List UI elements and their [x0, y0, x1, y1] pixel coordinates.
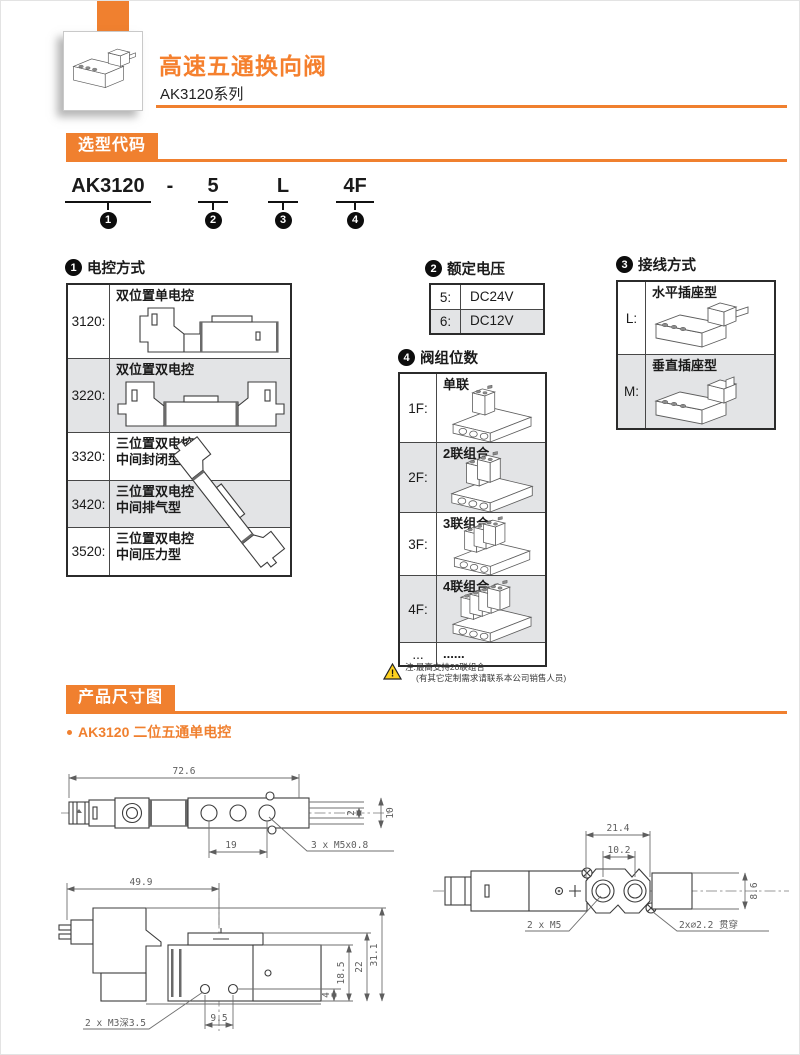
datasheet-page: 高速五通换向阀 AK3120系列 选型代码 AK3120 1 - 5 2 L 3…: [0, 0, 800, 1055]
page-title: 高速五通换向阀: [159, 47, 327, 81]
row-desc-line1: 三位置双电控: [116, 436, 284, 452]
row-code: 3320:: [68, 433, 110, 480]
model-code-tick: [354, 203, 356, 210]
note-line1: 注:最高支持20联组合: [405, 662, 566, 673]
model-code-tick: [212, 203, 214, 210]
row-desc-line1: 单联: [443, 377, 539, 393]
model-code-mark-4: 4: [347, 212, 364, 229]
row-desc-line1: 垂直插座型: [652, 358, 768, 374]
dim-hole-pitch: 9.5: [210, 1013, 227, 1024]
warning-triangle-icon: !: [383, 663, 402, 680]
row-desc-line1: 三位置双电控: [116, 484, 284, 500]
table-row: 2F: 2联组合: [400, 442, 545, 512]
row-desc: DC12V: [461, 310, 543, 333]
model-code-stations: 4F: [336, 175, 374, 203]
section-selection-rule: [66, 159, 787, 162]
table-row: 6: DC12V: [431, 309, 543, 333]
svg-text:!: !: [391, 669, 394, 680]
row-desc-line1: 三位置双电控: [116, 531, 284, 547]
table-row: 3320: 三位置双电控 中间封闭型: [68, 432, 290, 480]
row-desc: 垂直插座型: [646, 355, 774, 428]
row-code: 2F:: [400, 443, 437, 512]
note-line2: (有其它定制需求请联系本公司销售人员): [405, 673, 566, 684]
header-rule: [156, 105, 787, 108]
row-desc: DC24V: [461, 285, 543, 309]
valve-isometric-icon: [69, 43, 137, 99]
dim-overall-length: 72.6: [173, 766, 196, 777]
circled-digit-4: 4: [398, 349, 415, 366]
dim-port-thread-bottom: 2 x M5: [527, 920, 561, 931]
row-desc-line2: 中间压力型: [116, 547, 284, 563]
model-code-base: AK3120: [65, 175, 151, 203]
model-code-wiring: L: [268, 175, 298, 203]
row-code: 1F:: [400, 374, 437, 442]
table-row: 3520: 三位置双电控 中间压力型: [68, 527, 290, 575]
dim-side-length: 49.9: [130, 877, 153, 888]
model-code-segment-wiring: L 3: [268, 175, 298, 229]
dim-body-width: 10: [385, 807, 396, 819]
control-table-header: 1 电控方式: [65, 257, 145, 278]
table-row: 3F: 3联组合: [400, 512, 545, 575]
dim-slot-width: 2: [346, 810, 357, 816]
model-code-voltage: 5: [198, 175, 228, 203]
row-desc-line2: 中间封闭型: [116, 452, 284, 468]
model-code-tick: [282, 203, 284, 210]
dim-hole-offset: 4: [321, 992, 332, 998]
table-row: 5: DC24V: [431, 285, 543, 309]
circled-digit-1: 1: [65, 259, 82, 276]
model-code-mark-1: 1: [100, 212, 117, 229]
stations-table: 1F: 单联 2F: 2联组合: [398, 372, 547, 667]
row-desc-line1: 3联组合: [443, 516, 539, 532]
model-code-segment-stations: 4F 4: [336, 175, 374, 229]
dimension-drawing-top-view: 72.6 19 3 x M5x0.8 10 2: [59, 754, 404, 872]
model-code-segment-base: AK3120 1: [65, 175, 151, 229]
table-row: 4F: 4联组合: [400, 575, 545, 642]
table-row: L: 水平插座型: [618, 282, 774, 354]
row-code: 3220:: [68, 359, 110, 432]
model-code-separator: -: [161, 175, 179, 201]
table-row: M: 垂直插座型: [618, 354, 774, 428]
valve-iso-vertical-socket: [650, 375, 770, 427]
row-desc-line1: 4联组合: [443, 579, 539, 595]
dim-height-mid: 22: [354, 961, 365, 972]
dim-flange-width: 21.4: [607, 823, 630, 834]
table-row: 3220: 双位置双电控: [68, 358, 290, 432]
model-code-tick: [107, 203, 109, 210]
dimension-drawing-bottom-view: 21.4 10.2 8.6 2 x M5 2x∅2.2 贯穿: [429, 813, 796, 955]
row-desc: 三位置双电控 中间封闭型: [110, 433, 290, 480]
dim-port-pitch: 19: [225, 840, 237, 851]
row-desc-line1: 双位置单电控: [116, 288, 284, 304]
row-desc: 三位置双电控 中间压力型: [110, 528, 290, 575]
row-code: 3420:: [68, 481, 110, 527]
voltage-table-title: 额定电压: [447, 258, 505, 279]
circled-digit-3: 3: [616, 256, 633, 273]
voltage-table-header: 2 额定电压: [425, 258, 505, 279]
valve-side-drawing-double: [112, 374, 290, 430]
stations-table-header: 4 阀组位数: [398, 347, 478, 368]
circled-digit-2: 2: [425, 260, 442, 277]
row-desc: 3联组合: [437, 513, 545, 575]
model-code-segment-voltage: 5 2: [198, 175, 228, 229]
row-code: M:: [618, 355, 646, 428]
series-subtitle: AK3120系列: [160, 83, 243, 104]
stations-table-title: 阀组位数: [420, 347, 478, 368]
valve-side-drawing-single: [136, 298, 288, 356]
model-code-separator-wrap: -: [161, 175, 179, 201]
dim-mount-thread: 2 x M3深3.5: [85, 1018, 146, 1029]
row-desc: 水平插座型: [646, 282, 774, 354]
row-desc: 2联组合: [437, 443, 545, 512]
note-text: 注:最高支持20联组合 (有其它定制需求请联系本公司销售人员): [405, 662, 566, 684]
table-row: 3120: 双位置单电控: [68, 285, 290, 358]
row-desc: 双位置单电控: [110, 285, 290, 358]
model-code-mark-2: 2: [205, 212, 222, 229]
row-code: 6:: [431, 310, 461, 333]
table-row: 1F: 单联: [400, 374, 545, 442]
product-thumbnail-card: [63, 31, 143, 111]
row-code: 5:: [431, 285, 461, 309]
dim-port-pitch-bottom: 10.2: [608, 845, 631, 856]
dimension-subtitle: AK3120 二位五通单电控: [78, 722, 231, 742]
wiring-table: L: 水平插座型 M: 垂直插座型: [616, 280, 776, 430]
row-code: 3520:: [68, 528, 110, 575]
row-code: 3120:: [68, 285, 110, 358]
model-code-mark-3: 3: [275, 212, 292, 229]
dim-port-thread: 3 x M5x0.8: [311, 840, 368, 851]
wiring-table-header: 3 接线方式: [616, 254, 696, 275]
valve-iso-horizontal-socket: [650, 302, 770, 352]
row-code: L:: [618, 282, 646, 354]
row-desc: 三位置双电控 中间排气型: [110, 481, 290, 527]
dim-through-hole: 2x∅2.2 贯穿: [679, 919, 738, 931]
control-table-title: 电控方式: [87, 257, 145, 278]
row-desc-line1: 双位置双电控: [116, 362, 284, 378]
dim-height-port: 18.5: [336, 962, 347, 985]
section-selection-bar: 选型代码: [66, 133, 158, 159]
dim-body-width-bottom: 8.6: [749, 882, 760, 899]
wiring-table-title: 接线方式: [638, 254, 696, 275]
row-desc-line2: 中间排气型: [116, 500, 284, 516]
section-dimensions-bar: 产品尺寸图: [66, 685, 175, 711]
section-dimensions-rule: [66, 711, 787, 714]
row-desc-line1: 水平插座型: [652, 285, 768, 301]
voltage-table: 5: DC24V 6: DC12V: [429, 283, 545, 335]
row-desc: 单联: [437, 374, 545, 442]
row-desc: 4联组合: [437, 576, 545, 642]
control-table: 3120: 双位置单电控 3220: 双位置双电控: [66, 283, 292, 577]
dimension-subtitle-line: AK3120 二位五通单电控: [67, 722, 231, 742]
dim-overall-height: 31.1: [369, 943, 380, 966]
dimension-drawing-side-view: 49.9 4 18.5 22 31.1 9.5 2 x M3深3.5: [53, 873, 388, 1048]
row-desc: 双位置双电控: [110, 359, 290, 432]
row-code: 4F:: [400, 576, 437, 642]
row-desc-line1: 2联组合: [443, 446, 539, 462]
table-row: 3420: 三位置双电控 中间排气型: [68, 480, 290, 527]
row-code: 3F:: [400, 513, 437, 575]
bullet-icon: [67, 730, 72, 735]
